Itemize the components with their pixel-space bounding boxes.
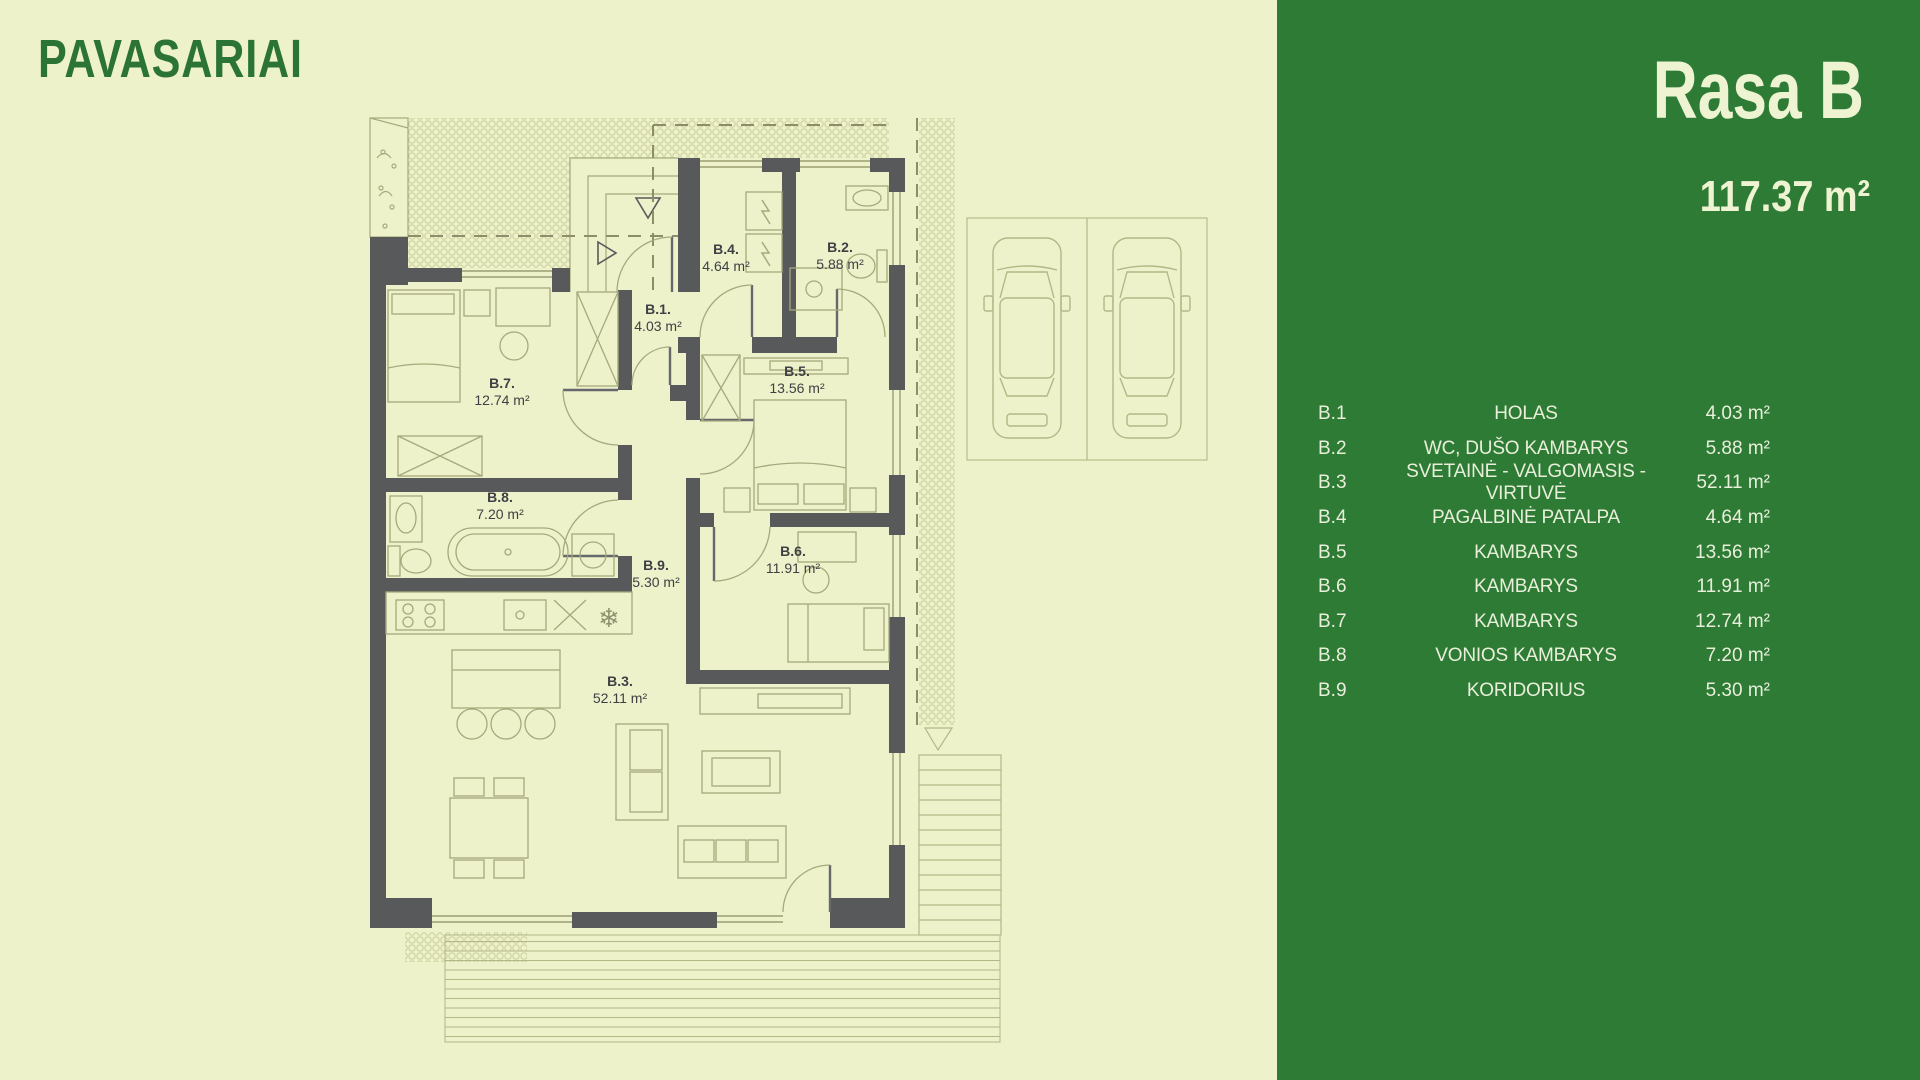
plan-room-area: 5.30 m² (632, 574, 679, 591)
plan-room-label: B.2. 5.88 m² (816, 239, 863, 273)
room-area: 13.56 m² (1666, 542, 1770, 564)
room-area: 12.74 m² (1666, 611, 1770, 633)
plan-room-code: B.8. (476, 489, 523, 506)
plan-room-code: B.6. (766, 543, 820, 560)
room-table-row: B.7 KAMBARYS 12.74 m² (1318, 605, 1770, 640)
planting-strip (370, 118, 408, 237)
info-panel: Rasa B 117.37 m² B.1 HOLAS 4.03 m² B.2 W… (1277, 0, 1920, 1080)
plan-room-area: 4.03 m² (634, 318, 681, 335)
plan-room-area: 52.11 m² (593, 690, 647, 707)
room-table-row: B.8 VONIOS KAMBARYS 7.20 m² (1318, 639, 1770, 674)
room-name: SVETAINĖ - VALGOMASIS - VIRTUVĖ (1386, 461, 1666, 505)
room-table-row: B.9 KORIDORIUS 5.30 m² (1318, 674, 1770, 709)
room-code: B.5 (1318, 542, 1386, 564)
furniture-utility-b4 (746, 192, 782, 272)
room-name: PAGALBINĖ PATALPA (1386, 507, 1666, 529)
stairs-down-arrow-icon (925, 728, 952, 750)
floor-plan-area: PAVASARIAI (0, 0, 1277, 1080)
room-code: B.7 (1318, 611, 1386, 633)
room-table-row: B.3 SVETAINĖ - VALGOMASIS - VIRTUVĖ 52.1… (1318, 466, 1770, 501)
plan-room-code: B.7. (474, 375, 529, 392)
plan-room-label: B.1. 4.03 m² (634, 301, 681, 335)
room-name: KAMBARYS (1386, 542, 1666, 564)
plan-room-area: 7.20 m² (476, 506, 523, 523)
room-table-row: B.1 HOLAS 4.03 m² (1318, 397, 1770, 432)
room-name: VONIOS KAMBARYS (1386, 645, 1666, 667)
terrace-deck (445, 935, 1000, 1042)
room-area: 11.91 m² (1666, 576, 1770, 598)
room-area: 7.20 m² (1666, 645, 1770, 667)
parking-spaces (967, 218, 1207, 460)
furniture-kitchen: ❄ (386, 592, 632, 634)
entrance-porch (570, 158, 678, 292)
room-code: B.4 (1318, 507, 1386, 529)
plan-room-label: B.3. 52.11 m² (593, 673, 647, 707)
room-name: KAMBARYS (1386, 611, 1666, 633)
plan-room-area: 13.56 m² (769, 380, 824, 397)
room-table-row: B.6 KAMBARYS 11.91 m² (1318, 570, 1770, 605)
plan-room-area: 5.88 m² (816, 256, 863, 273)
plan-room-area: 4.64 m² (702, 258, 749, 275)
plan-room-code: B.4. (702, 241, 749, 258)
room-code: B.8 (1318, 645, 1386, 667)
room-code: B.9 (1318, 680, 1386, 702)
plan-room-label: B.7. 12.74 m² (474, 375, 529, 409)
room-area: 4.03 m² (1666, 403, 1770, 425)
plan-room-code: B.1. (634, 301, 681, 318)
room-code: B.6 (1318, 576, 1386, 598)
stairs (919, 728, 1001, 935)
plan-room-code: B.9. (632, 557, 679, 574)
room-code: B.3 (1318, 472, 1386, 494)
room-name: WC, DUŠO KAMBARYS (1386, 438, 1666, 460)
plan-room-label: B.9. 5.30 m² (632, 557, 679, 591)
room-table-row: B.5 KAMBARYS 13.56 m² (1318, 535, 1770, 570)
room-name: KAMBARYS (1386, 576, 1666, 598)
plan-room-area: 11.91 m² (766, 560, 820, 577)
plan-room-area: 12.74 m² (474, 392, 529, 409)
room-area: 4.64 m² (1666, 507, 1770, 529)
unit-title: Rasa B (1653, 44, 1864, 138)
room-name: HOLAS (1386, 403, 1666, 425)
plan-room-label: B.5. 13.56 m² (769, 363, 824, 397)
plan-room-code: B.2. (816, 239, 863, 256)
plan-room-label: B.6. 11.91 m² (766, 543, 820, 577)
floor-plan-drawing: ❄ (0, 0, 1277, 1080)
room-code: B.2 (1318, 438, 1386, 460)
unit-total-area: 117.37 m² (1700, 172, 1870, 222)
room-table: B.1 HOLAS 4.03 m² B.2 WC, DUŠO KAMBARYS … (1318, 397, 1770, 708)
fridge-snowflake-icon: ❄ (598, 603, 620, 633)
room-area: 5.88 m² (1666, 438, 1770, 460)
plan-room-label: B.4. 4.64 m² (702, 241, 749, 275)
room-name: KORIDORIUS (1386, 680, 1666, 702)
plan-room-label: B.8. 7.20 m² (476, 489, 523, 523)
car-icon (1104, 238, 1190, 438)
furniture-living-b3 (450, 650, 850, 878)
plan-room-code: B.3. (593, 673, 647, 690)
car-icon (984, 238, 1070, 438)
room-table-row: B.4 PAGALBINĖ PATALPA 4.64 m² (1318, 501, 1770, 536)
plan-room-code: B.5. (769, 363, 824, 380)
room-area: 5.30 m² (1666, 680, 1770, 702)
room-code: B.1 (1318, 403, 1386, 425)
room-area: 52.11 m² (1666, 472, 1770, 494)
